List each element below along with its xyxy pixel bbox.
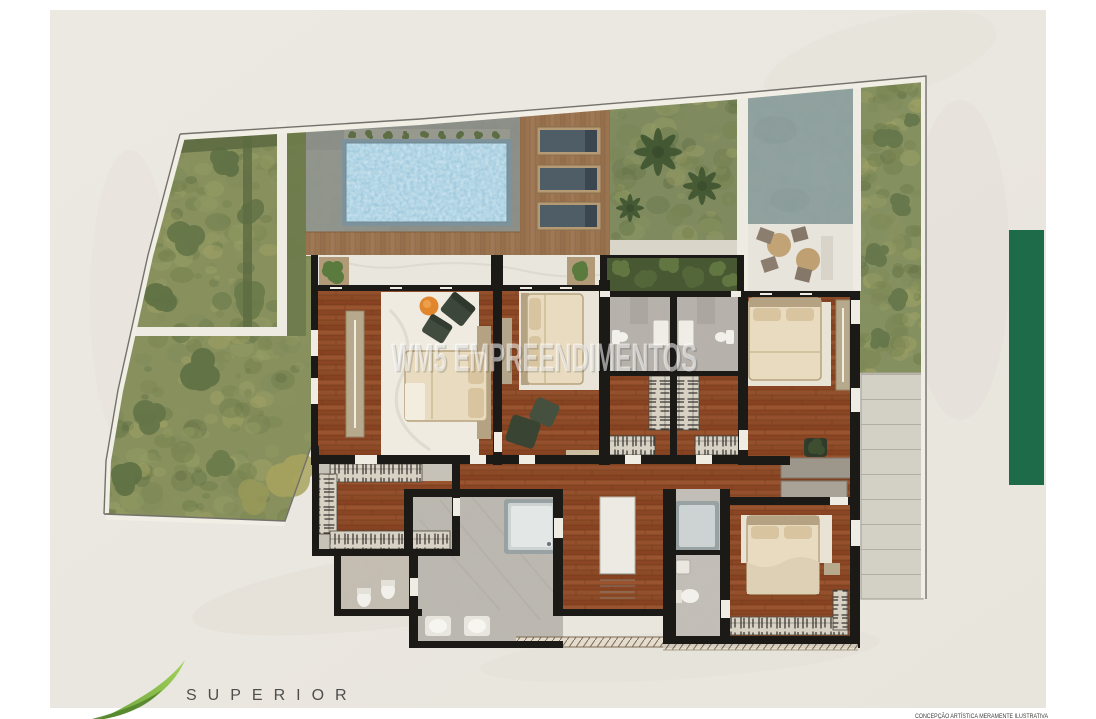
svg-text:SUPERIOR: SUPERIOR [186, 687, 358, 704]
svg-text:WM5 EMPREENDIMENTOS: WM5 EMPREENDIMENTOS [391, 336, 697, 380]
svg-text:CONCEPÇÃO ARTÍSTICA MERAMENTE: CONCEPÇÃO ARTÍSTICA MERAMENTE ILUSTRATIV… [915, 713, 1048, 719]
